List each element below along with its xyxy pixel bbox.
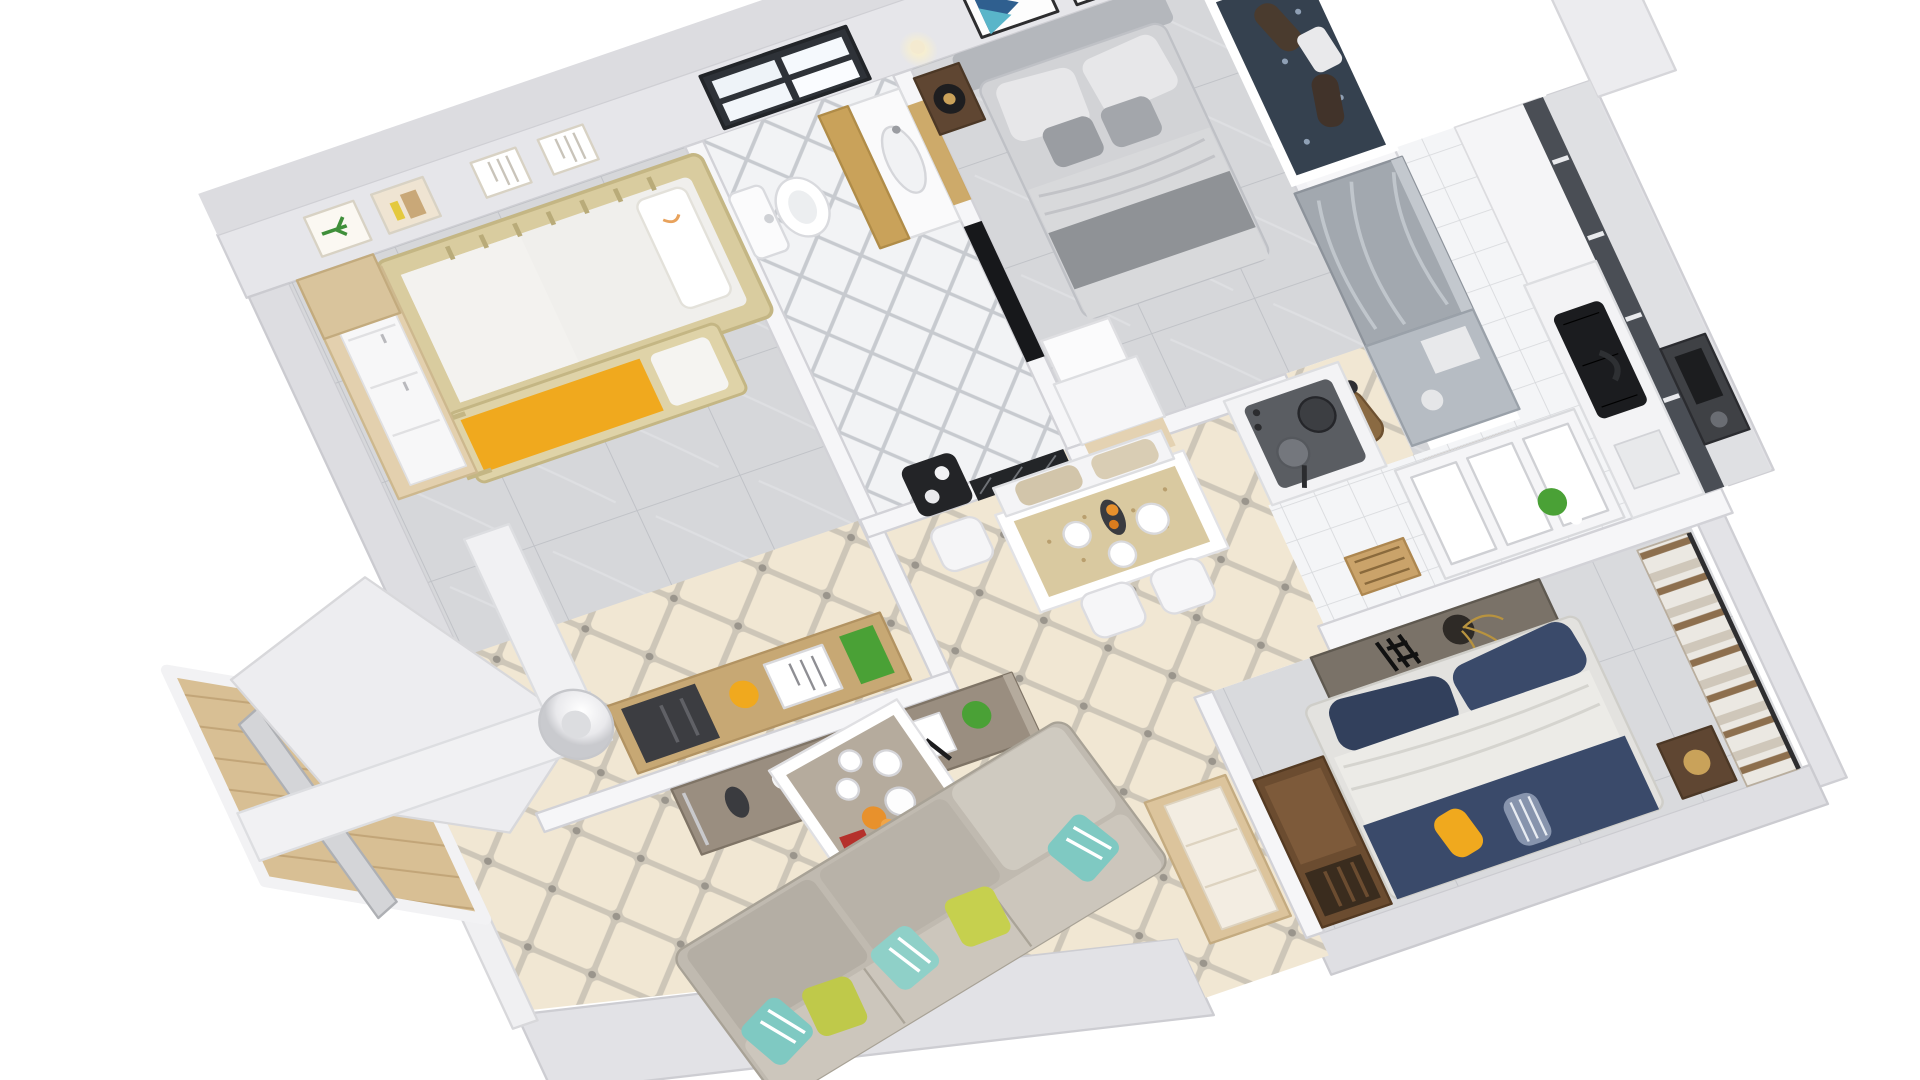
floorplan-svg: Kids bedroom [0, 0, 1920, 1080]
floorplan-render: Top-down 3D dollhouse rendering of a fur… [0, 0, 1920, 1080]
ac-ledge [1512, 0, 1676, 97]
